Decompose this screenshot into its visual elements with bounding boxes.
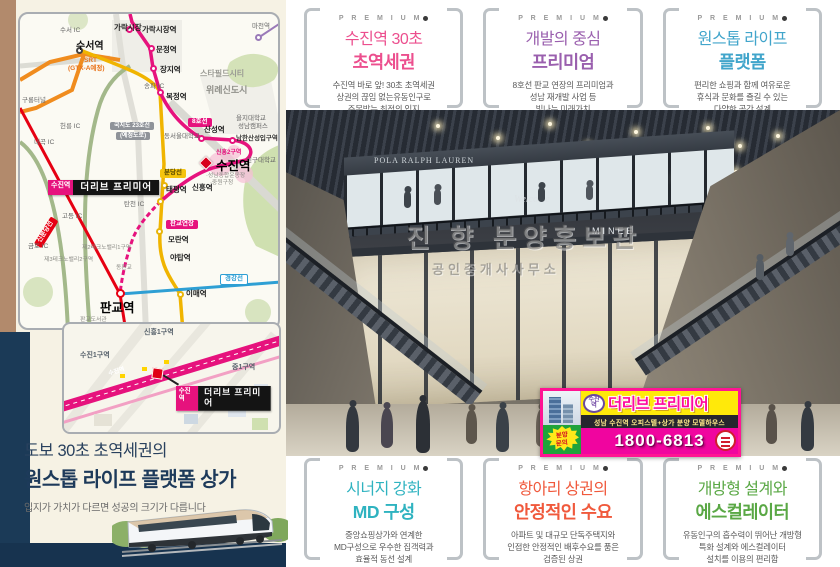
map-label: 동판교 — [116, 266, 132, 272]
site-label-name: 더리브 프리미어 — [73, 180, 159, 195]
premium-label: P R E M I U M — [320, 465, 447, 472]
premium-title2: 에스컬레이터 — [679, 499, 806, 524]
premium-label: P R E M I U M — [679, 15, 806, 22]
map-label: 제3테크노밸리2구역 — [44, 258, 93, 264]
premium-box: P R E M I U M 원스톱 라이프 플랫폼 편리한 쇼핑과 함께 여유로… — [663, 8, 822, 108]
premium-label: P R E M I U M — [499, 465, 626, 472]
premium-desc: 아파트 및 대규모 단독주택지와인접한 안정적인 배후수요를 품은검증된 상권 — [499, 529, 626, 566]
map-label: 판교역 — [100, 302, 135, 315]
stamp-icon — [715, 430, 736, 451]
map-label: 모란역 — [168, 236, 189, 244]
left-panel: 수서 IC수서역SRT(GTX-A예정)가락시장가락시장역문정역장지역스타필드시… — [0, 0, 286, 567]
site-label: 수진역 더리브 프리미어 — [48, 180, 159, 195]
inset-map: 신흥1구역수진1구역중1구역 수진역 수진역 더리브 프리미어 — [62, 322, 281, 434]
premium-desc: 유동인구의 흡수력이 뛰어난 개방형특화 설계와 에스컬레이터설치를 이용의 편… — [679, 529, 806, 566]
map-label: 구룡터널 — [22, 98, 46, 105]
premium-label: P R E M I U M — [499, 15, 626, 22]
map-label: 남한산성입구역 — [236, 136, 278, 143]
station-dot — [255, 34, 262, 41]
map-label: 송파 IC — [144, 84, 164, 91]
map-label: 내곡 IC — [34, 140, 54, 147]
station-tag-line2: 역 — [591, 403, 597, 409]
brochure-page: 수서 IC수서역SRT(GTX-A예정)가락시장가락시장역문정역장지역스타필드시… — [0, 0, 840, 567]
premium-box: P R E M I U M 시너지 강화 MD 구성 중앙쇼핑상가와 연계한MD… — [304, 458, 463, 560]
map-label: 헌릉 IC — [60, 124, 80, 131]
zone-label: 신흥1구역 — [144, 327, 174, 337]
zone-label: 수진1구역 — [80, 350, 110, 360]
premium-dot-icon — [782, 466, 787, 471]
premium-box: P R E M I U M 항아리 상권의 안정적인 수요 아파트 및 대규모 … — [483, 458, 642, 560]
station-dot — [156, 228, 163, 235]
map-label: 산성역 — [204, 126, 225, 134]
premium-title1: 수진역 30초 — [320, 25, 447, 49]
premium-dot-icon — [423, 466, 428, 471]
premium-dot-icon — [603, 16, 608, 21]
premium-title2: MD 구성 — [320, 499, 447, 524]
station-dot — [150, 65, 157, 72]
station-oval-badge: 수진 역 — [583, 394, 605, 413]
banner-left: 분양 문의 — [543, 391, 581, 454]
map-label: 신흥2구역 — [216, 150, 241, 156]
premium-title1: 시너지 강화 — [320, 475, 447, 499]
station-dot — [177, 291, 184, 298]
map-label: 수진역 — [216, 160, 251, 173]
station-dot — [116, 289, 125, 298]
map-label: 고등 IC — [62, 214, 82, 221]
premium-dot-icon — [603, 466, 608, 471]
map-label: 국지도 23호선 — [110, 122, 154, 130]
banner-right: 수진 역 더리브 프리미어 성남 수진역 오피스텔+상가 분양 모델하우스 18… — [581, 391, 738, 454]
map-label: 제2테크노밸리1구역 — [82, 246, 131, 252]
inset-site-label-tag: 수진역 — [176, 386, 198, 411]
premium-dot-icon — [423, 16, 428, 21]
phone-number: 1800-6813 — [614, 431, 704, 451]
watermark-line2: 공인중개사사무소 — [432, 259, 642, 278]
contact-banner: 분양 문의 수진 역 더리브 프리미어 성남 수진역 오피스텔+상가 분양 모델… — [540, 388, 741, 457]
premium-title2: 초역세권 — [320, 49, 447, 74]
map-label: SRT — [84, 58, 97, 65]
premium-title2: 플랫폼 — [679, 49, 806, 74]
premium-label: P R E M I U M — [679, 465, 806, 472]
storefront-sign: POLA RALPH LAUREN — [374, 156, 474, 165]
premium-box: P R E M I U M 개발의 중심 프리미엄 8호선 판교 연장의 프리미… — [483, 8, 642, 108]
map-label: 분당선 — [160, 169, 186, 178]
map-label: 가락시장 — [114, 24, 142, 32]
map-label: 판교연장 — [166, 220, 198, 229]
premium-title1: 개발의 중심 — [499, 25, 626, 49]
headline-line2: 원스톱 라이프 플랫폼 상가 — [24, 463, 236, 492]
premium-desc: 중앙쇼핑상가와 연계한MD구성으로 우수한 집객력과효율적 동선 설계 — [320, 529, 447, 566]
map-label: 성남캠퍼스 — [238, 124, 268, 131]
inquiry-box: 분양 문의 — [543, 425, 581, 454]
station-dot — [148, 45, 155, 52]
map-label: 이매역 — [186, 290, 207, 298]
map-label: 경강선 — [220, 274, 248, 285]
location-map: 수서 IC수서역SRT(GTX-A예정)가락시장가락시장역문정역장지역스타필드시… — [18, 12, 280, 330]
map-label: 동서울대학교 — [164, 134, 200, 141]
map-label: 태평역 — [166, 186, 187, 194]
map-label: 수서역 — [76, 42, 104, 52]
map-label: 문정역 — [156, 46, 177, 54]
brand-name: 더리브 프리미어 — [608, 392, 708, 414]
map-label: 야탑역 — [170, 254, 191, 262]
station-dot — [157, 198, 164, 205]
premium-title1: 개방형 설계와 — [679, 475, 806, 499]
map-label: 금토 IC — [28, 244, 48, 251]
brand-row: 수진 역 더리브 프리미어 — [581, 391, 738, 415]
phone-row: 1800-6813 — [581, 428, 738, 454]
station-dot — [229, 137, 236, 144]
building-thumbnail — [543, 391, 581, 425]
inset-site-label: 수진역 더리브 프리미어 — [176, 386, 271, 411]
site-label-tag: 수진역 — [48, 180, 73, 195]
map-label: 마천역 — [252, 24, 270, 31]
starburst-icon: 분양 문의 — [545, 426, 579, 453]
inquiry-word2: 문의 — [556, 439, 569, 448]
map-label: 을지대학교 — [236, 116, 266, 123]
premium-box: P R E M I U M 수진역 30초 초역세권 수진역 바로 앞! 30초… — [304, 8, 463, 108]
watermark-line1: 진 향 분양홍보관 — [406, 218, 642, 255]
map-label: 스타필드시티 — [200, 70, 244, 78]
map-label: ·성남종합운동장 — [206, 174, 245, 180]
inset-site-label-name: 더리브 프리미어 — [198, 386, 271, 411]
map-label: 신흥역 — [192, 184, 213, 192]
map-label: 위례신도시 — [206, 86, 247, 95]
map-label: 수서 IC — [60, 28, 80, 35]
map-label: 가락시장역 — [142, 26, 177, 34]
right-area: P R E M I U M 수진역 30초 초역세권 수진역 바로 앞! 30초… — [286, 0, 840, 567]
brown-edge-strip — [0, 0, 16, 332]
premium-label: P R E M I U M — [320, 15, 447, 22]
map-label: 복정역 — [166, 93, 187, 101]
watermark: 진 향 분양홍보관 공인중개사사무소 — [406, 218, 642, 278]
map-label: 장지역 — [160, 66, 181, 74]
premium-row-top: P R E M I U M 수진역 30초 초역세권 수진역 바로 앞! 30초… — [286, 8, 840, 108]
map-label: (예정도로) — [116, 132, 150, 140]
inset-site-marker — [151, 367, 163, 379]
banner-subtitle: 성남 수진역 오피스텔+상가 분양 모델하우스 — [581, 415, 738, 428]
map-label: 탄천 IC — [124, 202, 144, 209]
zone-label: 중1구역 — [232, 362, 255, 372]
map-label: (GTX-A예정) — [68, 66, 105, 73]
map-label: ·중원구청 — [210, 181, 233, 187]
premium-title2: 안정적인 수요 — [499, 499, 626, 524]
premium-dot-icon — [782, 16, 787, 21]
premium-box: P R E M I U M 개방형 설계와 에스컬레이터 유동인구의 흡수력이 … — [663, 458, 822, 560]
premium-row-bottom: P R E M I U M 시너지 강화 MD 구성 중앙쇼핑상가와 연계한MD… — [286, 458, 840, 560]
premium-title2: 프리미엄 — [499, 49, 626, 74]
premium-title1: 원스톱 라이프 — [679, 25, 806, 49]
headline-line1: 도보 30초 초역세권의 — [24, 437, 236, 461]
train-illustration — [112, 494, 288, 562]
premium-title1: 항아리 상권의 — [499, 475, 626, 499]
